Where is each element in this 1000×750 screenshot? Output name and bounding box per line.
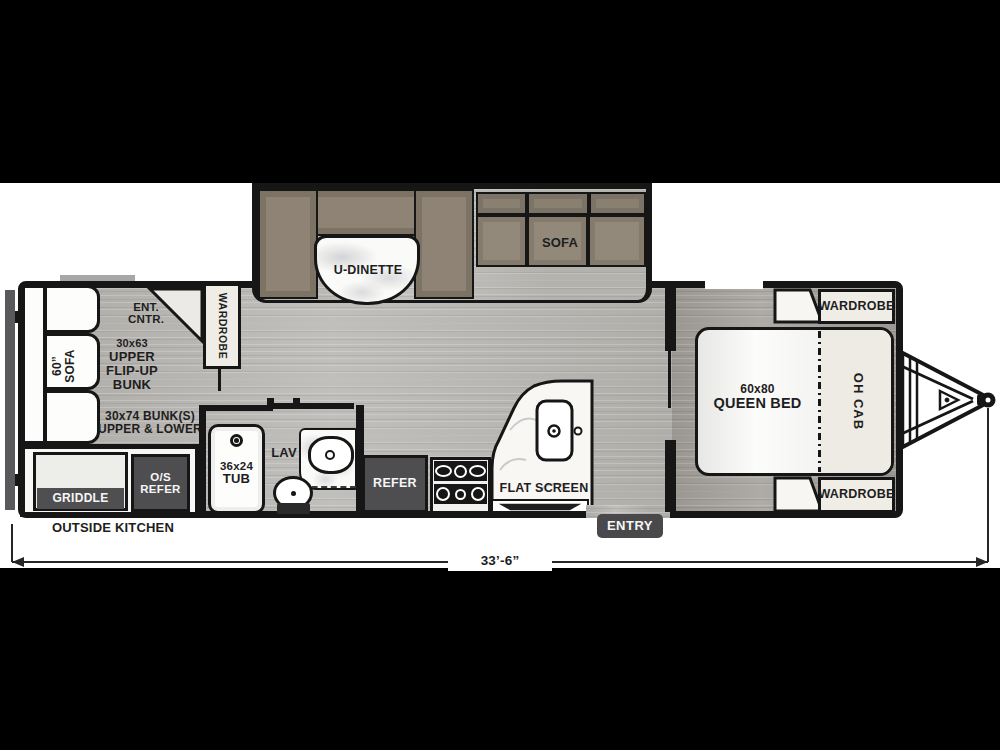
bunk-line1: 30x74 BUNK(S) <box>94 410 206 423</box>
bed-size: 60x80 <box>695 383 820 396</box>
dinette-label: U-DINETTE <box>318 264 418 278</box>
os-refer-line1: O/S <box>150 471 171 483</box>
refer-label: REFER <box>373 477 417 490</box>
burner-icon <box>471 487 485 501</box>
bedroom-pocket-door <box>668 351 671 408</box>
entry-badge: ENTRY <box>597 514 663 538</box>
range-vent-grate <box>434 461 487 481</box>
faucet-knob-icon <box>575 428 582 435</box>
sink-drain-dot <box>552 429 556 433</box>
bed-word: QUEEN BED <box>695 396 820 412</box>
os-refer-line2: REFER <box>140 483 180 495</box>
wardrobe-top-label: WARDROBE <box>819 300 895 314</box>
bumper-bracket <box>15 311 20 323</box>
tv-cabinet <box>491 499 589 513</box>
burner-icon <box>436 487 450 501</box>
bunk-word: FLIP-UP <box>92 364 172 378</box>
tub-faucet-dot <box>234 438 239 443</box>
bedroom-wall-lower <box>665 440 676 512</box>
rear-bumper <box>5 290 15 510</box>
door-hinge <box>293 398 300 405</box>
dimension-label: 33’-6” <box>448 551 552 571</box>
double-bunk-label: 30x74 BUNK(S) UPPER & LOWER <box>94 410 206 436</box>
bath-door <box>270 403 354 409</box>
bath-wall-top <box>199 405 273 411</box>
tub-label: 36x24 TUB <box>208 460 265 486</box>
dinette-bench-left <box>258 189 318 299</box>
bath-wall-left <box>199 405 206 516</box>
refrigerator: REFER <box>362 455 428 513</box>
griddle: GRIDDLE <box>37 488 124 509</box>
slide-sofa-label: SOFA <box>510 236 610 250</box>
sofa-back-cushion <box>589 192 646 215</box>
toilet-drain-dot <box>291 491 296 496</box>
oh-cab-label: OH CAB <box>850 352 865 452</box>
nightstand-top <box>775 290 822 322</box>
sofa-back-cushion <box>527 192 589 215</box>
hitch-a-frame <box>897 350 985 450</box>
ent-center-label: ENT. CNTR. <box>117 301 175 326</box>
bedroom-wall-upper <box>665 288 676 351</box>
grate-circle-icon <box>454 465 467 478</box>
grate-oval-icon <box>469 465 486 477</box>
left-sofa-text: SOFA <box>64 349 77 382</box>
wardrobe-door-line <box>218 369 221 391</box>
flat-screen-label: FLAT SCREEN <box>496 482 592 496</box>
bedroom-wardrobe-top: WARDROBE <box>818 289 895 324</box>
lav-drain-icon <box>325 450 335 460</box>
toilet-tank <box>277 503 310 514</box>
outside-kitchen-caption: OUTSIDE KITCHEN <box>27 521 199 535</box>
sofa-back-cushion <box>476 192 527 215</box>
bunk-word: BUNK <box>92 378 172 392</box>
tub-word: TUB <box>208 472 265 486</box>
left-sofa-back <box>22 285 46 444</box>
left-sofa-label: 60” SOFA <box>46 322 82 410</box>
outside-refrigerator: O/S REFER <box>131 454 190 512</box>
hitch-ball-center <box>986 398 991 403</box>
front-wardrobe-label: WARDROBE <box>215 281 229 371</box>
dim-arrow-left <box>12 557 24 567</box>
door-hinge <box>267 398 274 405</box>
tub-faucet-icon <box>230 434 243 447</box>
ent-line2: CNTR. <box>117 313 175 325</box>
floor-plan: U-DINETTE SOFA 60” SOFA ENT. CNTR. WARDR… <box>0 0 1000 750</box>
cooktop-burners <box>434 484 487 504</box>
bunk-line2: UPPER & LOWER <box>94 423 206 436</box>
entry-label: ENTRY <box>607 519 653 533</box>
dinette-bench-right <box>414 189 474 299</box>
flipup-bunk-label: 30x63 UPPER FLIP-UP BUNK <box>92 338 172 392</box>
grate-oval-icon <box>435 465 452 477</box>
lav-label: LAV <box>262 446 306 460</box>
nightstand-bottom <box>775 478 822 511</box>
queen-bed-label: 60x80 QUEEN BED <box>695 383 820 412</box>
dim-arrow-right <box>976 557 988 567</box>
ent-line1: ENT. <box>117 301 175 313</box>
bedroom-wardrobe-bottom: WARDROBE <box>818 477 895 513</box>
bumper-bracket <box>15 474 20 486</box>
bunk-word: UPPER <box>92 350 172 364</box>
griddle-label: GRIDDLE <box>52 492 108 505</box>
burner-icon <box>455 489 466 500</box>
flat-screen-tv-icon <box>499 503 582 511</box>
wardrobe-bottom-label: WARDROBE <box>819 488 895 502</box>
